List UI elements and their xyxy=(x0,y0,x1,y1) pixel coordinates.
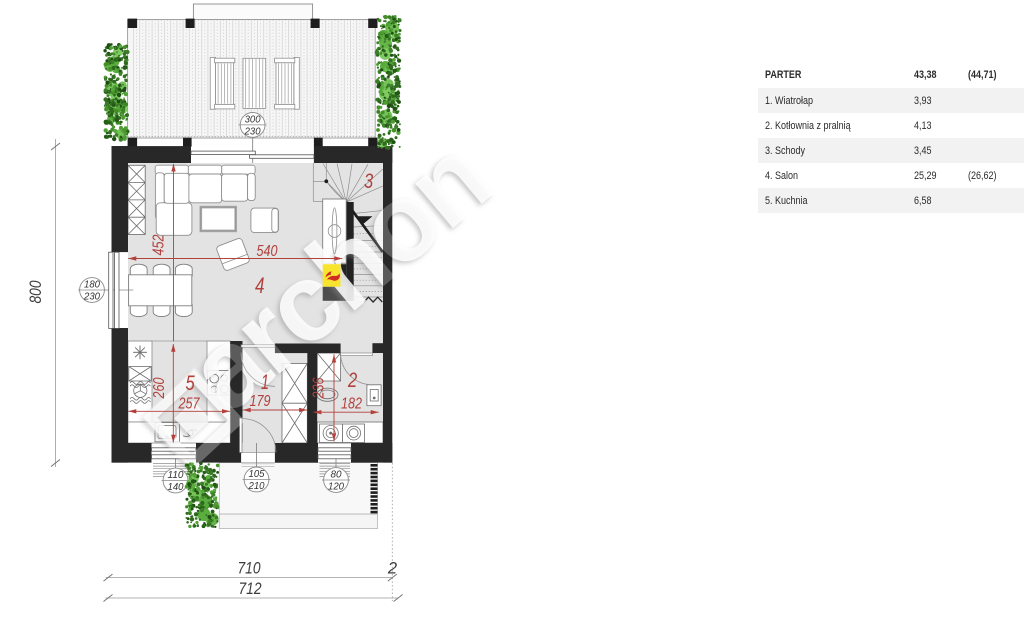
svg-text:140: 140 xyxy=(168,481,184,493)
svg-text:120: 120 xyxy=(328,481,344,493)
svg-text:257: 257 xyxy=(178,396,201,413)
svg-text:712: 712 xyxy=(239,580,262,598)
svg-text:260: 260 xyxy=(151,377,168,399)
svg-text:80: 80 xyxy=(331,469,342,481)
svg-text:1: 1 xyxy=(261,371,269,394)
svg-text:182: 182 xyxy=(341,396,362,413)
svg-text:236: 236 xyxy=(311,377,328,399)
svg-text:452: 452 xyxy=(151,234,168,255)
svg-text:2: 2 xyxy=(387,560,397,578)
svg-text:210: 210 xyxy=(248,480,265,492)
svg-text:2: 2 xyxy=(347,369,357,392)
svg-text:230: 230 xyxy=(244,125,261,137)
svg-text:300: 300 xyxy=(245,114,261,126)
svg-text:179: 179 xyxy=(250,393,271,410)
svg-text:180: 180 xyxy=(84,279,100,291)
svg-text:110: 110 xyxy=(168,469,184,481)
svg-text:540: 540 xyxy=(257,243,278,260)
svg-text:4: 4 xyxy=(255,273,265,298)
svg-text:800: 800 xyxy=(27,280,45,304)
svg-text:5: 5 xyxy=(186,372,195,395)
svg-text:3: 3 xyxy=(364,170,373,193)
svg-text:710: 710 xyxy=(238,560,262,578)
svg-text:230: 230 xyxy=(83,291,100,303)
svg-text:105: 105 xyxy=(249,468,265,480)
